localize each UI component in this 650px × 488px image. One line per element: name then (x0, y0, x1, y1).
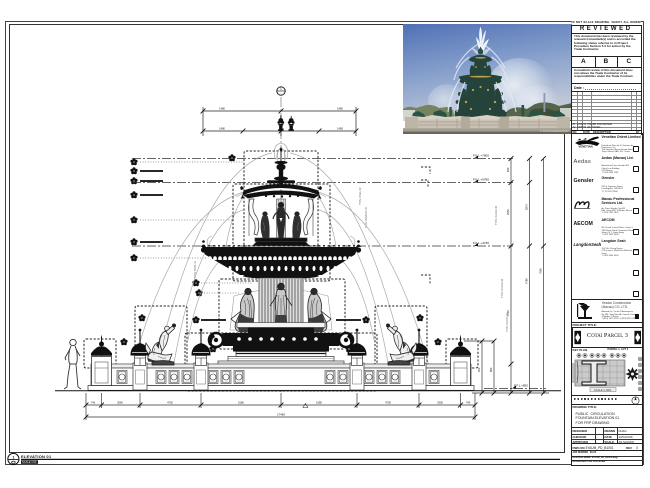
svg-text:6180: 6180 (238, 401, 244, 405)
svg-text:1480: 1480 (337, 107, 343, 111)
svg-text:TYPE FIGURE 03: TYPE FIGURE 03 (495, 205, 498, 225)
svg-text:SCALE 1:1000: SCALE 1:1000 (594, 388, 612, 392)
svg-text:TYPE FIGURE 02: TYPE FIGURE 02 (501, 278, 504, 298)
svg-text:4730: 4730 (167, 401, 173, 405)
svg-text:3060: 3060 (117, 401, 123, 405)
svg-text:740: 740 (91, 401, 96, 405)
svg-text:-: - (280, 92, 281, 96)
svg-text:VENETIAN: VENETIAN (578, 145, 592, 148)
svg-text:2050: 2050 (506, 209, 510, 215)
svg-text:TYPE FINIAL 02: TYPE FINIAL 02 (359, 187, 362, 205)
svg-text:4730: 4730 (385, 401, 391, 405)
svg-text:ELEVATION 01: ELEVATION 01 (21, 454, 52, 459)
svg-text:17490: 17490 (277, 413, 285, 417)
svg-text:F.F.L +850: F.F.L +850 (514, 383, 528, 387)
svg-text:740: 740 (466, 401, 471, 405)
svg-text:4780: 4780 (525, 278, 529, 284)
svg-text:1480: 1480 (219, 127, 225, 131)
svg-text:1480: 1480 (337, 127, 343, 131)
svg-text:890: 890 (489, 367, 493, 372)
svg-text:F.F.L +7600: F.F.L +7600 (473, 153, 489, 157)
svg-text:F.F.L +4730: F.F.L +4730 (473, 241, 489, 245)
svg-text:7600: 7600 (539, 268, 543, 274)
svg-text:1480: 1480 (219, 107, 225, 111)
svg-text:TYPE FIGURE 01: TYPE FIGURE 01 (506, 312, 509, 332)
svg-text:2870: 2870 (525, 204, 529, 210)
svg-text:SCALE 1:50: SCALE 1:50 (22, 460, 37, 464)
svg-text:1: 1 (12, 455, 14, 459)
svg-text:6180: 6180 (316, 401, 322, 405)
svg-text:F.F.L +6780: F.F.L +6780 (473, 177, 489, 181)
svg-text:1: 1 (280, 87, 282, 91)
svg-text:© PHOTOGRAPHER: © PHOTOGRAPHER (540, 129, 569, 133)
svg-text:3300: 3300 (437, 401, 443, 405)
svg-text:820: 820 (506, 167, 510, 172)
